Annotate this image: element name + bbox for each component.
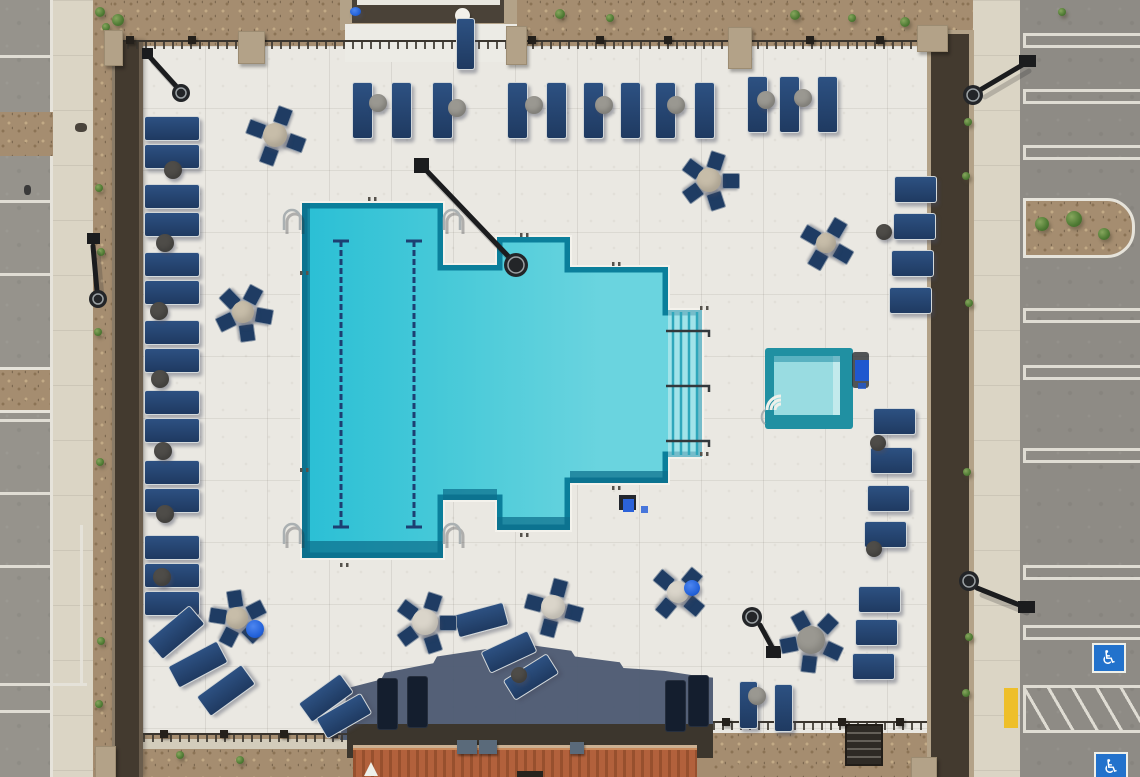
side-table [156, 505, 174, 523]
side-table [866, 541, 882, 557]
patio-chair [285, 133, 307, 154]
lounge-chair [694, 82, 715, 139]
side-table [150, 302, 168, 320]
side-table [153, 568, 171, 586]
lounge-chair [144, 348, 200, 373]
side-table [164, 161, 182, 179]
patio-chair [821, 640, 844, 662]
side-table [369, 94, 387, 112]
lounge-chair [873, 408, 916, 435]
patio-table [232, 301, 254, 323]
lounge-chair [870, 447, 913, 474]
side-table [151, 370, 169, 388]
blue-umbrella [684, 580, 700, 596]
patio-chair [439, 615, 457, 631]
lounge-chair [774, 684, 793, 732]
side-table [525, 96, 543, 114]
patio-table [263, 123, 287, 147]
lounge-chair-in-shadow [407, 676, 428, 728]
patio-table [797, 626, 825, 654]
lounge-chair-in-shadow [377, 678, 398, 730]
patio-table [697, 168, 721, 192]
patio-table [816, 233, 836, 253]
side-table [448, 99, 466, 117]
patio-chair [539, 618, 559, 640]
patio-chair [258, 145, 279, 167]
lounge-chair [852, 653, 895, 680]
side-table [870, 435, 886, 451]
lounge-chair [352, 82, 373, 139]
patio-chair [422, 633, 443, 655]
blue-umbrella [246, 620, 264, 638]
lounge-chair [453, 602, 509, 639]
lounge-chair [144, 390, 200, 415]
side-table [748, 687, 766, 705]
lounge-chair [620, 82, 641, 139]
patio-chair [564, 603, 586, 623]
lounge-chair-in-shadow [665, 680, 686, 732]
lounge-chair [144, 418, 200, 443]
aerial-pool-photo: ♿♿ [0, 0, 1140, 777]
side-table [757, 91, 775, 109]
lounge-chair [893, 213, 936, 240]
lounge-chair [546, 82, 567, 139]
side-table [511, 667, 527, 683]
lounge-chair [507, 82, 528, 139]
lounge-chair [858, 586, 901, 613]
lounge-chair [144, 184, 200, 209]
lounge-chair [855, 619, 898, 646]
lounge-chair [391, 82, 412, 139]
lounge-chair [144, 116, 200, 141]
patio-chair [253, 307, 274, 326]
lounge-chair [867, 485, 910, 512]
lounge-chair [817, 76, 838, 133]
lounge-chair [889, 287, 932, 314]
lounge-chair-in-shadow [688, 675, 709, 727]
side-table [794, 89, 812, 107]
patio-table [541, 595, 565, 619]
patio-chair [238, 323, 256, 343]
side-table [156, 234, 174, 252]
side-table [667, 96, 685, 114]
lounge-chair [894, 176, 937, 203]
patio-chair [800, 654, 818, 674]
lounge-chair [144, 535, 200, 560]
lounge-chair [144, 212, 200, 237]
furniture-layer [0, 0, 1140, 777]
side-table [154, 442, 172, 460]
lounge-chair [456, 18, 475, 70]
patio-chair [706, 190, 727, 212]
side-table [595, 96, 613, 114]
lounge-chair [144, 320, 200, 345]
lounge-chair [144, 280, 200, 305]
side-table [876, 224, 892, 240]
lounge-chair [144, 252, 200, 277]
lounge-chair [144, 460, 200, 485]
patio-table [226, 607, 248, 629]
patio-table [412, 609, 438, 635]
patio-chair [722, 173, 740, 189]
lounge-chair [891, 250, 934, 277]
